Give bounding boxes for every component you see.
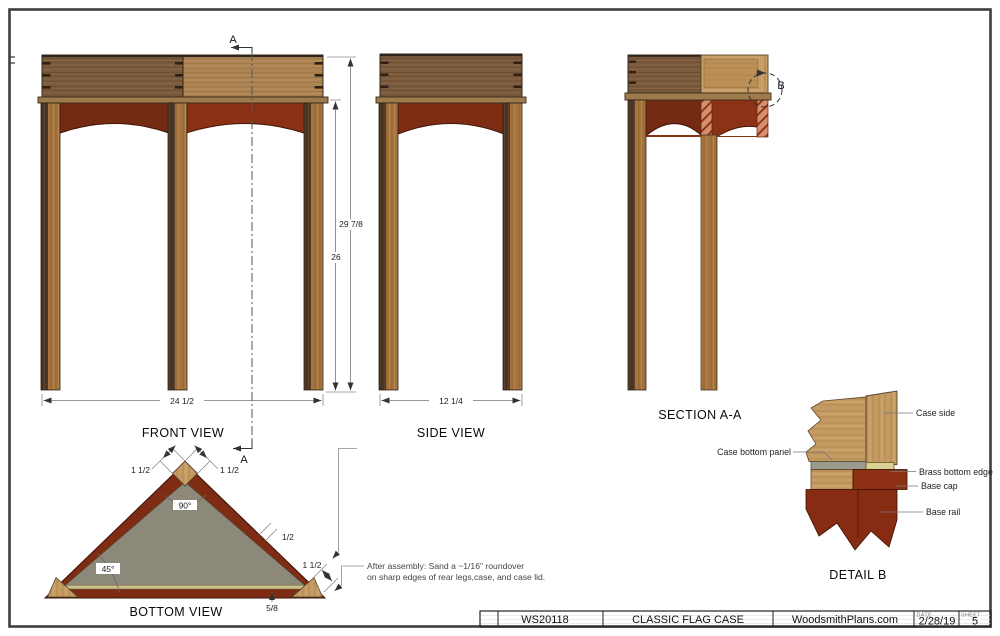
section-marker-a-bottom: A	[240, 454, 248, 466]
note-line-1: After assembly: Sand a ~1/16" roundover	[367, 561, 524, 571]
dim-case-side: 1/2	[282, 532, 294, 542]
side-legs	[379, 103, 522, 390]
detail-front-edge	[811, 470, 853, 490]
dim-leg-height: 26	[331, 252, 341, 262]
angle-base: 45°	[102, 564, 115, 574]
front-legs	[41, 103, 323, 390]
callout-base-rail: Base rail	[926, 507, 960, 517]
section-legs	[628, 100, 717, 390]
bottom-view-label: BOTTOM VIEW	[129, 605, 222, 619]
section-marker-a-top: A	[229, 34, 237, 46]
detail-brass-edge	[866, 463, 894, 470]
dim-leg-left: 1 1/2	[131, 465, 150, 475]
side-view: 12 1/4 SIDE VIEW	[376, 54, 526, 441]
section-hatch-post	[701, 100, 712, 136]
front-view-label: FRONT VIEW	[142, 426, 224, 440]
section-case-exterior	[628, 55, 701, 93]
front-case-top-edge	[42, 55, 323, 58]
plan-number: WS20118	[521, 614, 569, 626]
dim-leg-right: 1 1/2	[220, 465, 239, 475]
detail-b-view: Case side Case bottom panel Brass bottom…	[717, 391, 993, 582]
side-apron	[398, 103, 504, 134]
dim-leg-corner: 1 1/2	[303, 560, 322, 570]
detail-base-rail	[806, 490, 897, 551]
section-case-back-panel	[704, 59, 758, 88]
section-aa-view: B SECTION A-A	[625, 55, 785, 422]
callout-base-cap: Base cap	[921, 481, 958, 491]
plan-drawing: 29 7/8 26 24 1/2 FRONT VIEW A A	[0, 0, 1000, 636]
dim-side-depth: 12 1/4	[439, 396, 463, 406]
bottom-view: 90° 45° 1 1/2 1 1/2 1/2 1 1/2	[45, 446, 338, 620]
detail-b-label: DETAIL B	[829, 568, 886, 582]
title-block: WS20118 CLASSIC FLAG CASE WoodsmithPlans…	[480, 611, 991, 628]
section-hatch-side	[757, 100, 768, 137]
angle-apex: 90°	[179, 501, 192, 511]
front-rail	[38, 97, 328, 103]
callout-case-side: Case side	[916, 408, 955, 418]
front-case-right	[183, 55, 323, 97]
callout-case-bottom-panel: Case bottom panel	[717, 447, 791, 457]
dim-base-molding: 5/8	[266, 603, 278, 613]
callout-brass-bottom-edge: Brass bottom edge	[919, 467, 993, 477]
drawing-sheet: 29 7/8 26 24 1/2 FRONT VIEW A A	[0, 0, 1000, 636]
sheet-note: After assembly: Sand a ~1/16" roundover …	[333, 449, 546, 592]
publisher: WoodsmithPlans.com	[792, 614, 898, 626]
side-case	[380, 54, 522, 97]
detail-case-side	[866, 391, 897, 465]
sheet-number: 5	[972, 616, 978, 628]
front-case-left	[42, 55, 183, 97]
note-line-2: on sharp edges of rear legs,case, and ca…	[367, 572, 545, 582]
side-view-label: SIDE VIEW	[417, 426, 485, 440]
bottom-brass-strip	[66, 585, 304, 589]
front-view: 29 7/8 26 24 1/2 FRONT VIEW	[38, 55, 366, 441]
date-value: 2/28/19	[919, 616, 956, 628]
section-aa-label: SECTION A-A	[658, 408, 742, 422]
detail-b-marker: B	[777, 80, 784, 92]
detail-base-cap	[853, 470, 907, 490]
dim-front-width: 24 1/2	[170, 396, 194, 406]
detail-bottom-panel	[811, 462, 866, 470]
plan-title: CLASSIC FLAG CASE	[632, 614, 744, 626]
side-rail	[376, 97, 526, 103]
dim-overall-height: 29 7/8	[339, 219, 363, 229]
